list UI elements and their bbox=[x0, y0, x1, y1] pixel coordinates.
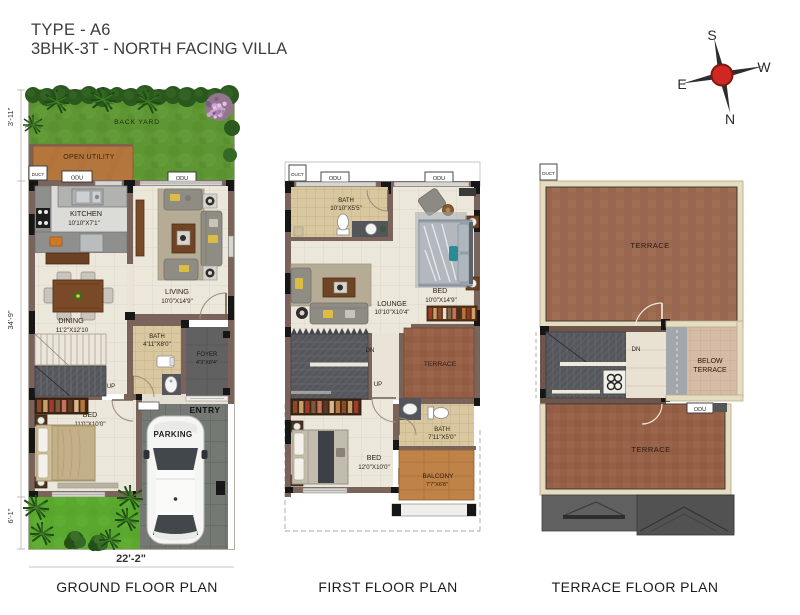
svg-text:TERRACE: TERRACE bbox=[630, 241, 669, 250]
svg-text:FOYER: FOYER bbox=[197, 352, 218, 358]
svg-text:3BHK-3T - NORTH FACING VILLA: 3BHK-3T - NORTH FACING VILLA bbox=[31, 40, 287, 58]
svg-text:DINING: DINING bbox=[58, 316, 84, 325]
svg-text:6'-1": 6'-1" bbox=[6, 508, 15, 523]
svg-text:ODU: ODU bbox=[694, 407, 706, 413]
svg-text:22'-2": 22'-2" bbox=[116, 553, 146, 565]
svg-text:4'11"X8'0": 4'11"X8'0" bbox=[143, 341, 171, 348]
svg-text:TERRACE: TERRACE bbox=[424, 361, 457, 368]
svg-text:UP: UP bbox=[374, 382, 382, 388]
svg-text:BALCONY: BALCONY bbox=[422, 473, 454, 480]
svg-text:7'7"X6'8": 7'7"X6'8" bbox=[426, 482, 448, 488]
svg-text:7'11"X5'0": 7'11"X5'0" bbox=[428, 434, 456, 441]
svg-text:TYPE - A6: TYPE - A6 bbox=[31, 21, 111, 39]
svg-text:10'10"X10'4": 10'10"X10'4" bbox=[375, 309, 410, 316]
svg-text:ENTRY: ENTRY bbox=[190, 405, 221, 415]
svg-text:BED: BED bbox=[433, 288, 447, 295]
svg-text:10'10"X7'1": 10'10"X7'1" bbox=[68, 220, 100, 227]
svg-text:S: S bbox=[707, 27, 716, 43]
svg-text:BED: BED bbox=[367, 455, 381, 462]
svg-text:KITCHEN: KITCHEN bbox=[70, 209, 102, 218]
svg-text:10'0"X14'9": 10'0"X14'9" bbox=[425, 297, 457, 304]
svg-text:PARKING: PARKING bbox=[153, 430, 192, 439]
svg-text:DUCT: DUCT bbox=[32, 172, 45, 177]
svg-text:UP: UP bbox=[107, 384, 115, 390]
svg-text:TERRACE FLOOR PLAN: TERRACE FLOOR PLAN bbox=[552, 579, 719, 595]
svg-text:N: N bbox=[725, 111, 735, 127]
svg-text:E: E bbox=[677, 76, 686, 92]
svg-text:BATH: BATH bbox=[149, 334, 165, 340]
svg-text:LOUNGE: LOUNGE bbox=[377, 301, 407, 308]
svg-text:34'-9": 34'-9" bbox=[6, 310, 15, 329]
svg-text:LIVING: LIVING bbox=[165, 287, 189, 296]
svg-text:BATH: BATH bbox=[338, 198, 354, 204]
svg-text:GROUND FLOOR PLAN: GROUND FLOOR PLAN bbox=[56, 579, 218, 595]
svg-text:FIRST FLOOR PLAN: FIRST FLOOR PLAN bbox=[318, 579, 457, 595]
svg-text:11'2"X12'10: 11'2"X12'10 bbox=[56, 327, 89, 334]
svg-text:BED: BED bbox=[83, 412, 97, 419]
svg-text:10'10"X5'5": 10'10"X5'5" bbox=[330, 205, 362, 212]
svg-text:OPEN UTILITY: OPEN UTILITY bbox=[63, 154, 114, 161]
svg-text:TERRACE: TERRACE bbox=[693, 367, 727, 374]
svg-text:BATH: BATH bbox=[434, 427, 450, 433]
svg-text:ODU: ODU bbox=[71, 176, 83, 182]
svg-text:ODU: ODU bbox=[433, 176, 445, 182]
svg-text:BELOW: BELOW bbox=[697, 358, 723, 365]
svg-text:4'3"X8'4": 4'3"X8'4" bbox=[196, 360, 218, 366]
svg-text:DN: DN bbox=[632, 347, 641, 353]
svg-text:3'-11": 3'-11" bbox=[6, 107, 15, 126]
svg-text:12'0"X10'0": 12'0"X10'0" bbox=[358, 464, 390, 471]
svg-text:10'0"X14'9": 10'0"X14'9" bbox=[161, 298, 193, 305]
svg-text:DN: DN bbox=[366, 348, 375, 354]
svg-text:W: W bbox=[757, 59, 771, 75]
svg-text:ODU: ODU bbox=[329, 176, 341, 182]
svg-text:BACK YARD: BACK YARD bbox=[114, 119, 160, 126]
svg-text:DUCT: DUCT bbox=[291, 172, 304, 177]
svg-text:DUCT: DUCT bbox=[542, 171, 555, 176]
svg-text:TERRACE: TERRACE bbox=[631, 445, 670, 454]
